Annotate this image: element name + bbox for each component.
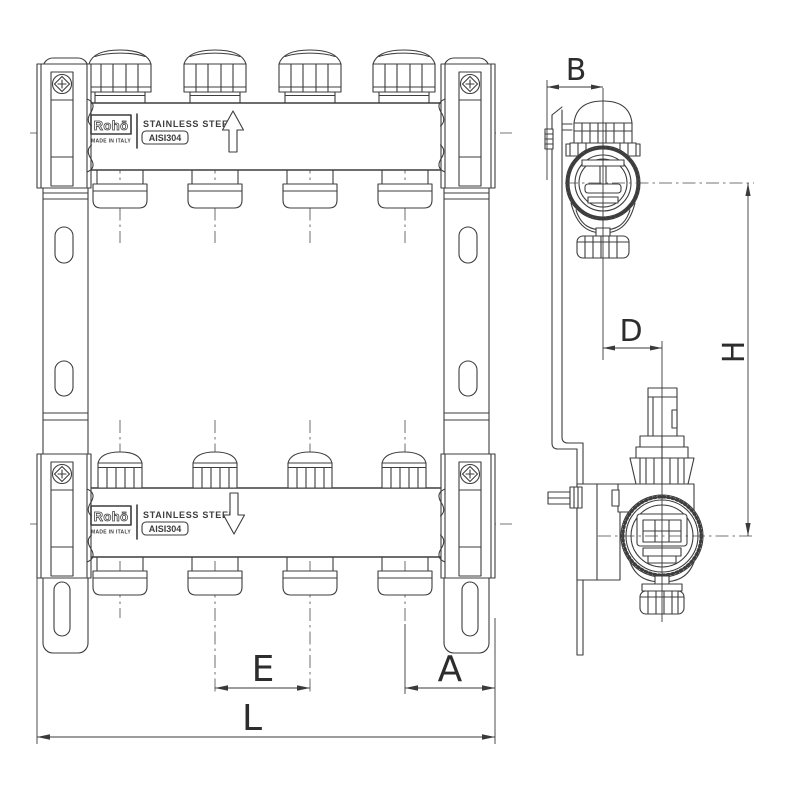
manifold-cap <box>184 50 246 103</box>
outlet-connector <box>283 170 337 208</box>
made-in-italy-label: MADE IN ITALY <box>91 530 131 536</box>
mounting-bracket-left <box>37 58 93 653</box>
manifold-tube-section <box>548 484 620 580</box>
dim-label-overall-length: L <box>242 698 262 739</box>
outlet-connector <box>188 170 242 208</box>
material-label: STAINLESS STEEL <box>143 119 235 129</box>
manifold-cap-small <box>382 452 426 488</box>
centerline <box>30 133 512 692</box>
brand-logo: Rohō <box>94 118 129 133</box>
dimension-outlet-spacing: E <box>215 649 310 691</box>
side-view: B D H <box>545 53 754 655</box>
dim-label-axis-height: H <box>717 341 752 364</box>
made-in-italy-label: MADE IN ITALY <box>91 139 131 145</box>
grade-label: AISI304 <box>149 524 182 534</box>
manifold-cap-small <box>288 452 332 488</box>
brand-logo: Rohō <box>94 509 129 524</box>
manifold-cap <box>89 50 151 103</box>
manifold-cap <box>373 50 435 103</box>
outlet-connector <box>93 170 147 208</box>
dim-label-bracket-depth: B <box>566 53 587 88</box>
dimension-axis-height: H <box>717 183 752 536</box>
front-view: Rohō MADE IN ITALY STAINLESS STEEL AISI3… <box>30 50 512 744</box>
manifold-cap-small <box>98 452 142 488</box>
technical-drawing: Rohō MADE IN ITALY STAINLESS STEEL AISI3… <box>0 0 800 800</box>
material-label: STAINLESS STEEL <box>143 510 235 520</box>
mounting-bracket-right <box>439 58 495 653</box>
manifold-top-body <box>45 103 491 170</box>
bottom-valve <box>612 388 703 614</box>
dimension-valve-axis-offset: D <box>603 314 662 351</box>
dim-label-valve-axis-offset: D <box>619 314 642 349</box>
dim-label-end-to-outlet: A <box>438 649 463 690</box>
manifold-cap-small <box>193 452 237 488</box>
outlet-connector <box>378 170 432 208</box>
grade-label: AISI304 <box>149 133 182 143</box>
dimension-end-to-outlet: A <box>405 618 495 744</box>
dim-label-outlet-spacing: E <box>252 649 275 690</box>
manifold-cap <box>279 50 341 103</box>
